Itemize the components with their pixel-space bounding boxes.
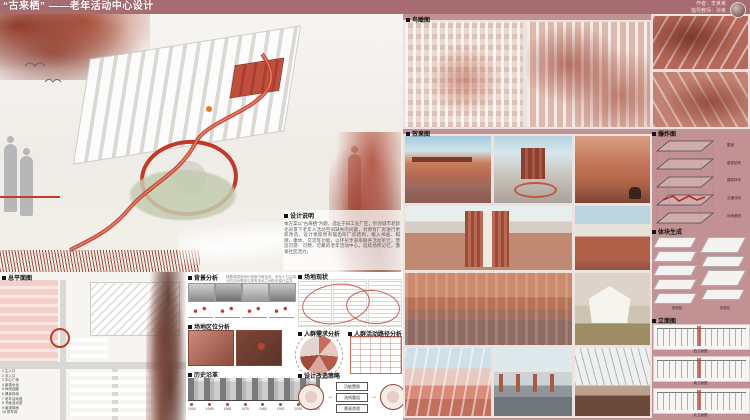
massing-block	[653, 293, 697, 304]
plan-pink-blocks	[0, 280, 58, 362]
strategy-node-circle	[380, 384, 403, 410]
location-map	[236, 330, 282, 366]
location-analysis-label: 场地区位分析	[188, 322, 230, 331]
massing-block	[700, 237, 747, 253]
exploded-layer-labels: 屋面屋架结构建筑体块交通流线场地基底	[727, 137, 741, 225]
birdseye-label: 鸟瞰图	[406, 15, 430, 24]
list-item: 1978	[241, 403, 249, 411]
exploded-label: 爆炸图	[652, 129, 676, 138]
elevations-label: 立面图	[652, 316, 676, 325]
elevation-caption: 南立面图	[653, 381, 748, 386]
bullet-icon	[406, 132, 410, 136]
render-tower-plaza	[494, 136, 572, 203]
list-item: 1966	[223, 403, 231, 411]
massing-column-after	[704, 234, 746, 303]
avatar	[730, 2, 746, 18]
mini-diagram	[215, 304, 240, 318]
bullet-icon	[188, 373, 192, 377]
needs-analysis-label: 人群需求分析	[298, 329, 340, 338]
silhouette-person	[4, 144, 17, 212]
birdseye-render-2	[527, 22, 650, 127]
list-item: 交通流线	[727, 196, 741, 201]
elevation-drawing	[653, 388, 750, 414]
poster-title: “古来栖” ——老年活动中心设计	[3, 0, 154, 14]
elevation-caption: 北立面图	[653, 413, 748, 418]
plan-building-strips	[70, 338, 108, 362]
bullet-icon	[652, 132, 656, 136]
massing-block	[653, 237, 697, 248]
main-aerial-render: 设计说明 本方案以“古来栖”为题，选址于旧工业厂区，针对城市老龄化背景下老年人活…	[0, 14, 403, 272]
mini-diagram	[242, 304, 267, 318]
strategy-steps: 功能置换流线重组景观渗透	[336, 382, 368, 413]
elevation-caption: 西立面图	[653, 349, 748, 354]
bw-photo	[215, 283, 242, 302]
massing-block	[653, 251, 697, 262]
location-map	[188, 330, 234, 366]
list-item: 场地基底	[727, 214, 741, 219]
site-status-label: 场地现状	[298, 272, 328, 281]
bullet-icon	[188, 276, 192, 280]
list-item: 1950	[188, 403, 196, 411]
list-item: 功能置换	[336, 382, 368, 391]
list-item: 1958	[206, 403, 214, 411]
render-water-reflection	[405, 273, 572, 345]
massing-caption-after: 改造后	[704, 306, 746, 311]
massing-caption-before: 改造前	[656, 306, 698, 311]
author-line: 作者：李某某	[691, 1, 726, 8]
site-plan-label: 总平面图	[2, 273, 32, 282]
bullet-icon	[284, 214, 288, 218]
mini-diagram	[188, 304, 213, 318]
bw-photo	[188, 283, 215, 302]
list-item: 建筑体块	[727, 178, 741, 183]
bullet-icon	[652, 230, 656, 234]
bullet-icon	[298, 275, 302, 279]
background-analysis-label: 背景分析	[188, 273, 218, 282]
bullet-icon	[188, 325, 192, 329]
paths-analysis-label: 人群活动路径分析	[348, 329, 402, 338]
render-truss-hall	[575, 348, 650, 416]
design-note-block: 设计说明 本方案以“古来栖”为题，选址于旧工业厂区，针对城市老龄化背景下老年人活…	[283, 210, 401, 270]
analysis-panel: 背景分析 随着我国老龄化程度不断加深，老年人日益增长的活动需求与现有场地之间的矛…	[186, 272, 403, 420]
render-brick-tower	[405, 206, 572, 270]
render-red-building	[575, 206, 650, 270]
massing-column-before	[656, 234, 698, 307]
list-item: 屋面	[727, 143, 741, 148]
paths-grid-chart	[350, 336, 402, 374]
massing-block	[701, 256, 745, 267]
render-canopy-interior	[575, 136, 650, 203]
list-item: 1992	[277, 403, 285, 411]
massing-block	[653, 265, 697, 276]
presentation-board: “古来栖” ——老年活动中心设计 作者：李某某 指导教师：孙某 设计	[0, 0, 750, 420]
render-white-tent	[575, 273, 650, 345]
renders-label: 效果图	[406, 129, 430, 138]
list-item: 屋架结构	[727, 161, 741, 166]
birdseye-render-1	[405, 22, 523, 127]
render-courtyard-water	[405, 136, 491, 203]
strategy-label: 设计改造策略	[298, 371, 340, 380]
bullet-icon	[652, 319, 656, 323]
red-accent-line	[0, 196, 60, 198]
design-note-label: 设计说明	[284, 211, 400, 220]
bw-photo	[242, 283, 269, 302]
exploded-axon-diagram	[653, 137, 725, 225]
bullet-icon	[298, 332, 302, 336]
render-pink-terrace	[405, 348, 491, 416]
elevation-drawing	[653, 356, 750, 382]
bullet-icon	[348, 332, 352, 336]
strategy-node-circle	[298, 384, 324, 410]
render-colonnade-street	[494, 348, 572, 416]
mini-diagram	[269, 304, 294, 318]
red-aerial-photo-2	[653, 72, 748, 127]
bullet-icon	[406, 18, 410, 22]
massing-block	[653, 279, 697, 290]
bullet-icon	[298, 374, 302, 378]
list-item: 流线重组	[336, 393, 368, 402]
silhouette-person	[20, 156, 33, 216]
bullet-icon	[2, 276, 6, 280]
advisor-line: 指导教师：孙某	[691, 8, 726, 15]
strategy-flow-diagram: → 功能置换流线重组景观渗透 →	[298, 378, 402, 416]
credits-block: 作者：李某某 指导教师：孙某	[691, 1, 726, 15]
site-plan-panel: 总平面图 1 主入口2 次入口3 中心广场4 景观水池5 休闲连廊6 健身场地7…	[0, 272, 186, 420]
arrow-icon: →	[371, 394, 377, 400]
history-label: 历史沿革	[188, 370, 218, 379]
massing-block	[701, 289, 745, 300]
massing-block	[700, 270, 747, 286]
plan-legend: 1 主入口2 次入口3 中心广场4 景观水池5 休闲连廊6 健身场地7 老年活动…	[2, 369, 48, 415]
elevation-drawing	[653, 324, 750, 350]
needs-rose-diagram	[300, 336, 338, 374]
arrow-icon: →	[327, 394, 333, 400]
bw-photo	[269, 283, 296, 302]
list-item: 1985	[259, 403, 267, 411]
plan-red-circle	[50, 328, 70, 348]
massing-label: 体块生成	[652, 227, 682, 236]
plan-road	[60, 280, 66, 420]
red-grass-strip	[0, 250, 200, 272]
red-aerial-photo-1	[653, 16, 748, 69]
list-item: 10 停车场	[2, 410, 48, 415]
list-item: 景观渗透	[336, 404, 368, 413]
plan-foliage	[146, 272, 186, 420]
design-note-text: 本方案以“古来栖”为题，选址于旧工业厂区，针对城市老龄化背景下老年人活动空间缺失…	[284, 221, 400, 255]
